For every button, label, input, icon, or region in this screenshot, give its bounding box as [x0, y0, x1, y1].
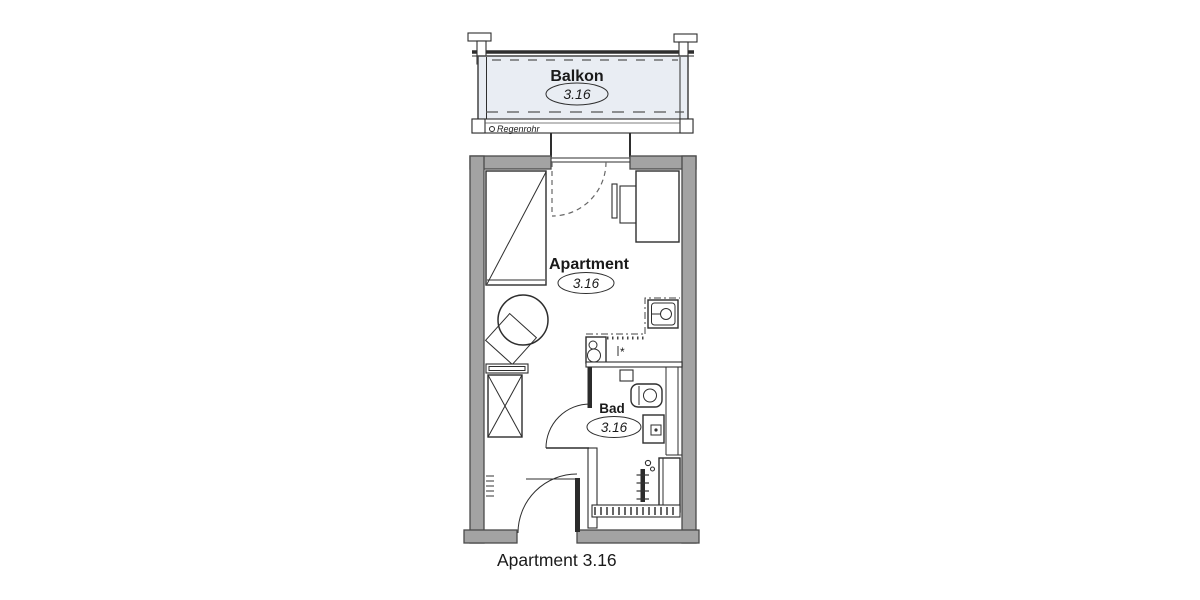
balcony-strip-block-right: [680, 119, 693, 133]
bathroom: [586, 362, 682, 528]
bathroom-wall-stub-upper: [588, 367, 593, 408]
outlet-symbol: *: [620, 345, 625, 359]
balcony-number: 3.16: [563, 86, 590, 102]
bathroom-top-wall: [586, 362, 682, 367]
entry-door-swing-arc: [518, 474, 577, 533]
kitchenette: *: [586, 298, 680, 363]
radiator-valve-2: [651, 467, 655, 471]
wall-right: [682, 156, 696, 543]
wall-bottom-right-segment: [577, 530, 699, 543]
balcony-post-cap-right: [674, 34, 697, 42]
toilet: [631, 384, 662, 407]
apartment-label: Apartment: [549, 256, 630, 273]
radiator-ticks: [486, 476, 494, 496]
balcony-post-cap-left: [468, 33, 491, 41]
floorplan-page: Regenrohr: [0, 0, 1200, 600]
cistern-box: [620, 370, 633, 381]
balcony-door: [551, 158, 630, 216]
desk-chair-back: [612, 184, 617, 218]
plan-caption: Apartment 3.16: [497, 550, 617, 570]
doors: [518, 404, 590, 533]
balcony-door-swing-arc: [552, 162, 606, 216]
balcony-strip-block-left: [472, 119, 485, 133]
labels: Balkon 3.16 Apartment 3.16 Bad 3.16 Apar…: [497, 68, 641, 570]
apartment-number: 3.16: [573, 276, 600, 291]
shelf: [486, 364, 528, 373]
towel-radiator: [641, 469, 646, 502]
floor-plan: Regenrohr: [0, 0, 1200, 600]
bathroom-number: 3.16: [601, 420, 628, 435]
rain-pipe-label: Regenrohr: [497, 124, 541, 134]
entry-door-leaf: [575, 478, 580, 532]
shower-cabinet: [659, 458, 680, 512]
desk: [636, 171, 679, 242]
radiator-valve-1: [645, 460, 650, 465]
bath-door-swing-arc: [546, 404, 590, 448]
wall-bottom-left-segment: [464, 530, 517, 543]
bathroom-label: Bad: [599, 401, 625, 416]
round-table: [498, 295, 548, 345]
washbasin-drain: [654, 428, 657, 431]
wall-left: [470, 156, 484, 543]
table-chair: [486, 314, 537, 365]
balcony-label: Balkon: [550, 68, 603, 85]
